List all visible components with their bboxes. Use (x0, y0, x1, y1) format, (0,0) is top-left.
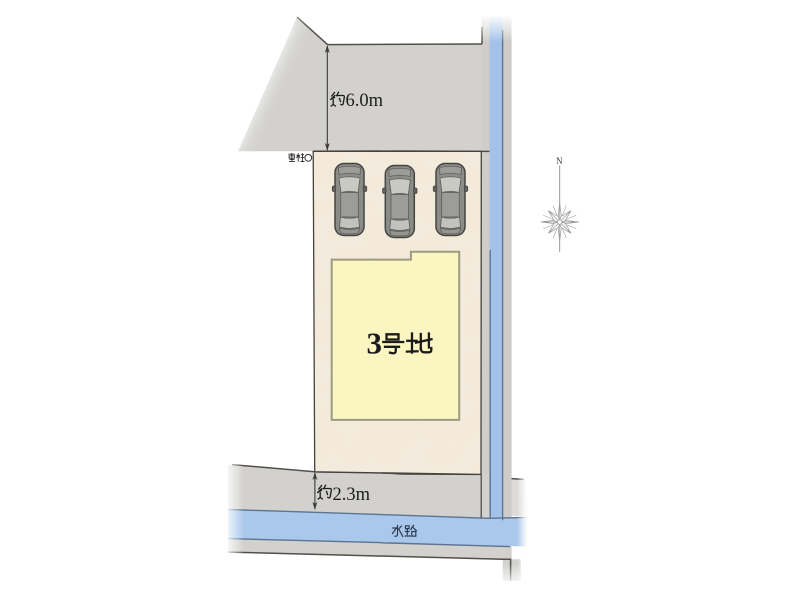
svg-text:6.0m: 6.0m (346, 91, 384, 111)
svg-text:3: 3 (367, 326, 383, 361)
svg-text:2.3m: 2.3m (333, 485, 371, 505)
svg-text:N: N (556, 156, 563, 166)
